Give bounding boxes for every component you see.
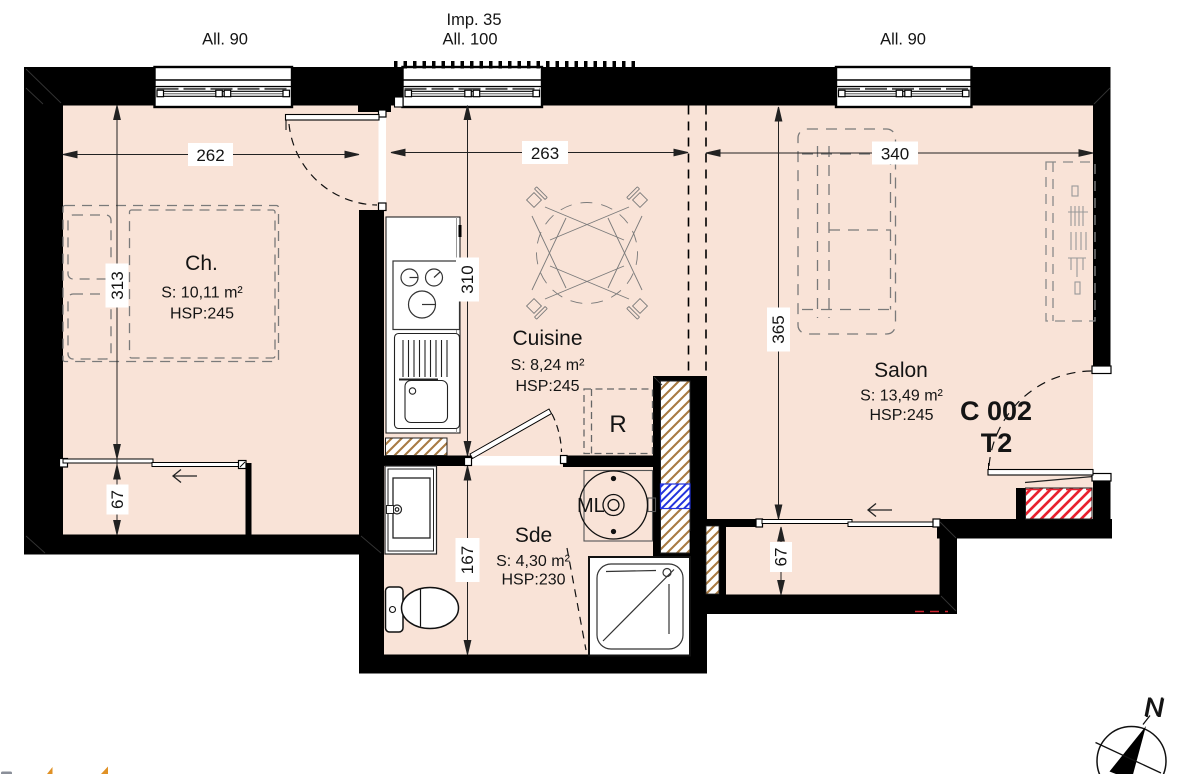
svg-text:T2: T2 <box>981 428 1013 458</box>
svg-text:S: 13,49 m²: S: 13,49 m² <box>860 388 943 405</box>
svg-text:S: 10,11 m²: S: 10,11 m² <box>161 285 243 302</box>
svg-text:HSP:245: HSP:245 <box>869 407 933 424</box>
svg-text:R: R <box>609 411 626 438</box>
svg-text:313: 313 <box>108 271 127 299</box>
svg-text:All. 100: All. 100 <box>442 31 497 49</box>
svg-text:Imp. 35: Imp. 35 <box>446 11 501 29</box>
svg-text:HSP:230: HSP:230 <box>501 572 565 589</box>
svg-text:167: 167 <box>458 546 477 574</box>
svg-text:N: N <box>1144 692 1164 722</box>
svg-text:Ch.: Ch. <box>185 252 218 275</box>
svg-text:S: 8,24 m²: S: 8,24 m² <box>511 357 585 374</box>
svg-text:340: 340 <box>881 145 909 164</box>
svg-text:365: 365 <box>769 315 788 343</box>
svg-text:HSP:245: HSP:245 <box>515 378 579 395</box>
svg-text:C 002: C 002 <box>960 396 1032 426</box>
svg-text:All. 90: All. 90 <box>202 31 248 49</box>
svg-text:ML: ML <box>577 495 605 517</box>
svg-text:All. 90: All. 90 <box>880 31 926 49</box>
svg-text:Sde: Sde <box>515 524 552 547</box>
svg-text:HSP:245: HSP:245 <box>170 306 234 323</box>
svg-text:67: 67 <box>108 490 127 509</box>
svg-text:263: 263 <box>531 144 559 163</box>
svg-text:67: 67 <box>772 548 791 567</box>
svg-text:Cuisine: Cuisine <box>512 327 582 350</box>
svg-text:262: 262 <box>196 146 224 165</box>
svg-text:310: 310 <box>458 265 477 293</box>
svg-text:S: 4,30 m²: S: 4,30 m² <box>496 553 570 570</box>
svg-text:Salon: Salon <box>874 359 928 382</box>
